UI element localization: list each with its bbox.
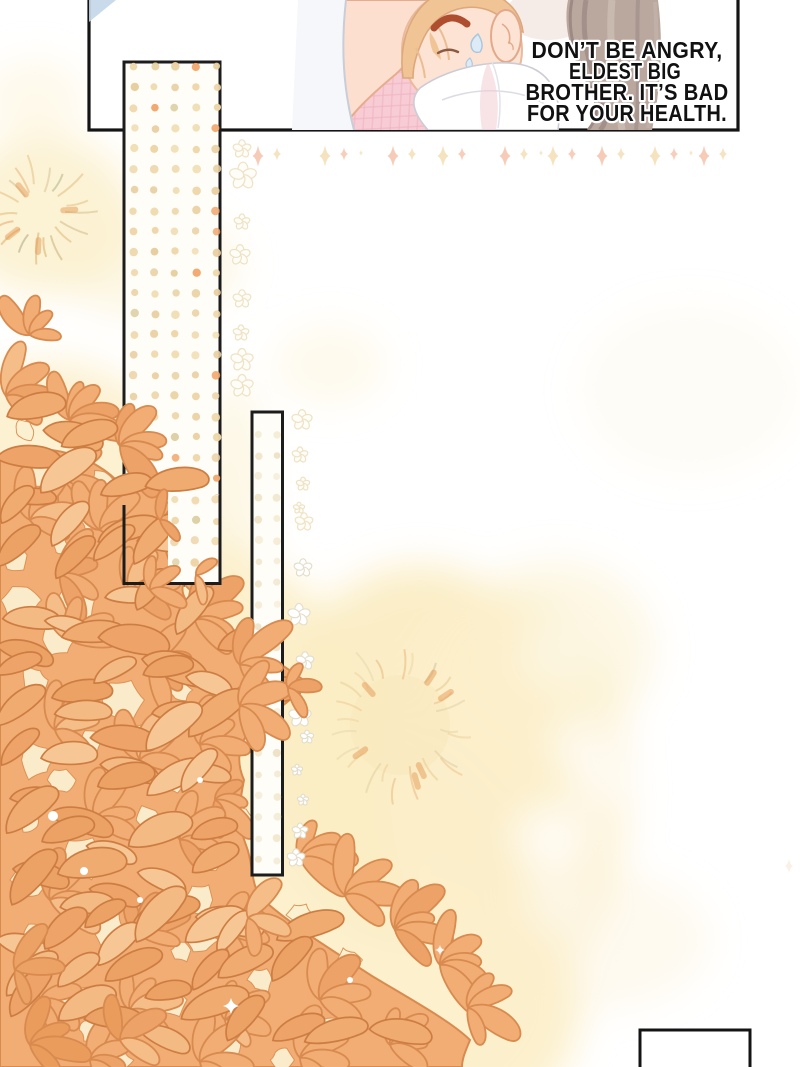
svg-text:FOR YOUR HEALTH.: FOR YOUR HEALTH. (527, 100, 727, 126)
